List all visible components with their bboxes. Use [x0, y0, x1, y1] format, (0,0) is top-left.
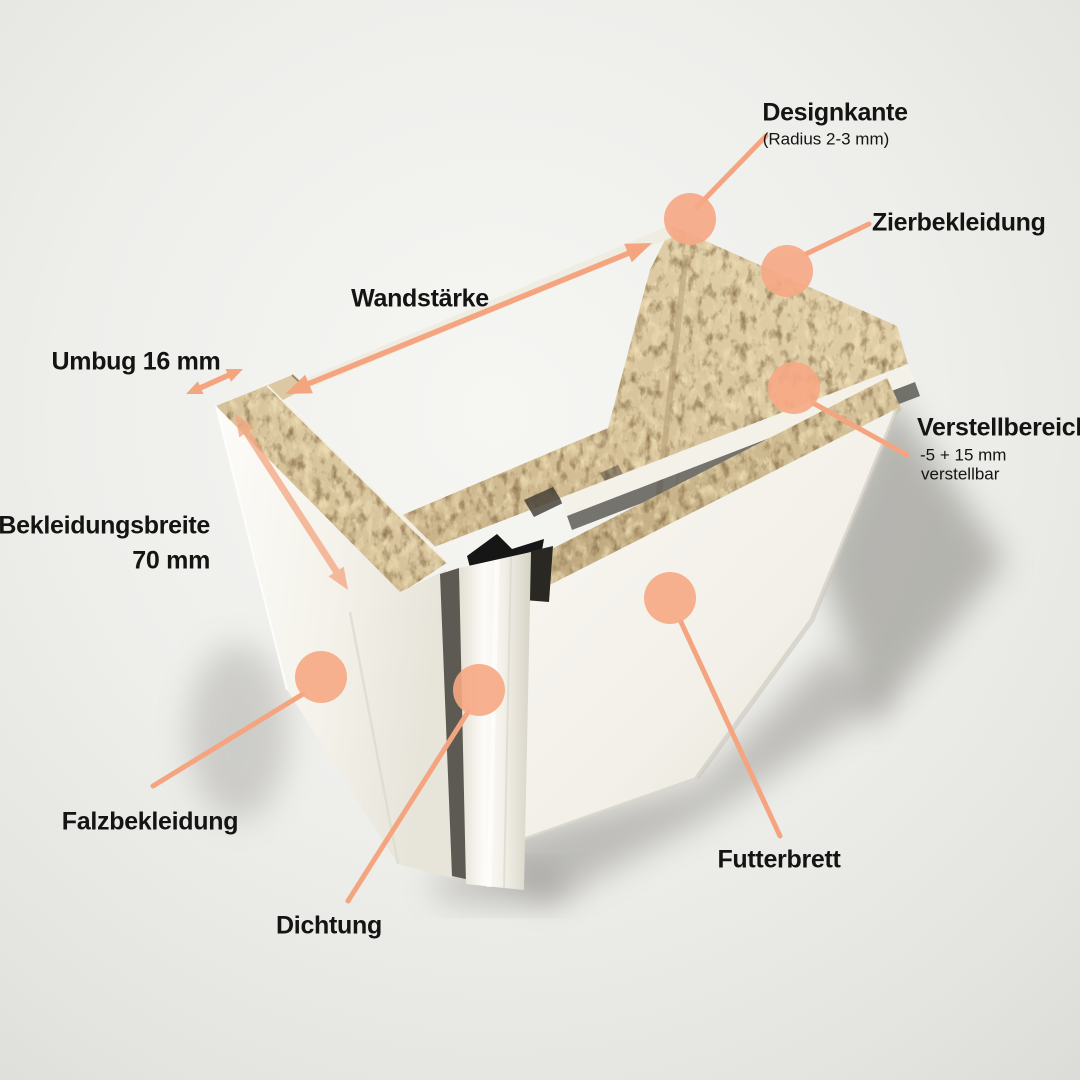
dot-verstellbereich	[768, 362, 820, 414]
dot-falzbekleidung	[295, 651, 347, 703]
label-dichtung: Dichtung	[276, 912, 382, 940]
label-verstellbereich-sub2: verstellbar	[921, 466, 999, 485]
leader-designkante	[697, 136, 766, 207]
label-umbug: Umbug 16 mm	[52, 348, 221, 376]
label-designkante-sub: (Radius 2-3 mm)	[763, 131, 890, 150]
label-designkante: Designkante	[762, 99, 907, 127]
label-verstellbereich: Verstellbereich	[917, 414, 1080, 442]
leader-zierbekleidung	[806, 224, 869, 254]
label-bekleidungsbreite: Bekleidungsbreite	[0, 512, 210, 540]
diagram-stage: Designkante (Radius 2-3 mm) Zierbekleidu…	[0, 0, 1080, 1080]
label-zierbekleidung: Zierbekleidung	[872, 209, 1046, 237]
label-wandstaerke: Wandstärke	[351, 285, 489, 313]
dot-futterbrett	[644, 572, 696, 624]
label-falzbekleidung: Falzbekleidung	[62, 808, 238, 836]
door-frame-illustration	[0, 0, 1080, 1080]
label-verstellbereich-sub1: -5 + 15 mm	[920, 447, 1006, 466]
wandstaerke-arrow	[285, 243, 652, 394]
dot-dichtung	[453, 664, 505, 716]
label-bekleidungsbreite-value: 70 mm	[132, 547, 210, 575]
dot-zierbekleidung	[761, 245, 813, 297]
label-futterbrett: Futterbrett	[717, 846, 840, 874]
dot-designkante	[664, 193, 716, 245]
